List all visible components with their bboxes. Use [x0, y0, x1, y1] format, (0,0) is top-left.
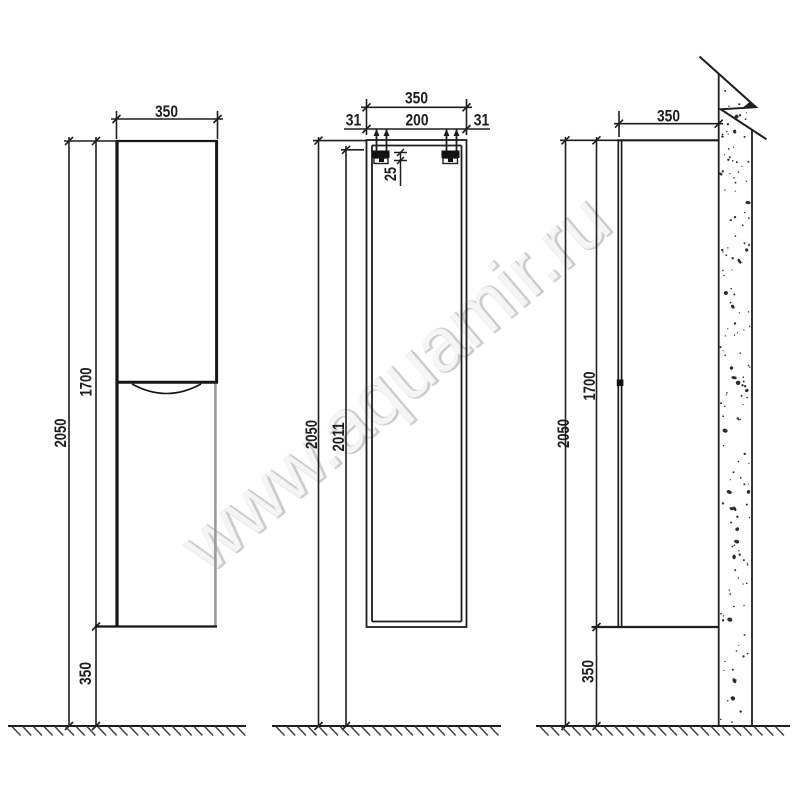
svg-text:1700: 1700	[78, 368, 96, 397]
svg-text:2050: 2050	[52, 419, 70, 448]
svg-text:www.aquamir.ru: www.aquamir.ru	[164, 177, 625, 588]
svg-text:350: 350	[155, 103, 178, 121]
svg-text:350: 350	[405, 90, 428, 108]
svg-text:350: 350	[77, 662, 95, 685]
svg-text:350: 350	[580, 660, 598, 683]
svg-text:31: 31	[346, 111, 362, 129]
svg-text:350: 350	[657, 107, 680, 125]
svg-text:31: 31	[474, 111, 490, 129]
svg-text:2050: 2050	[555, 419, 573, 448]
svg-text:2011: 2011	[330, 423, 348, 452]
svg-text:2050: 2050	[303, 420, 321, 449]
svg-text:25: 25	[382, 167, 400, 181]
svg-text:1700: 1700	[581, 372, 599, 401]
svg-text:200: 200	[406, 111, 429, 129]
